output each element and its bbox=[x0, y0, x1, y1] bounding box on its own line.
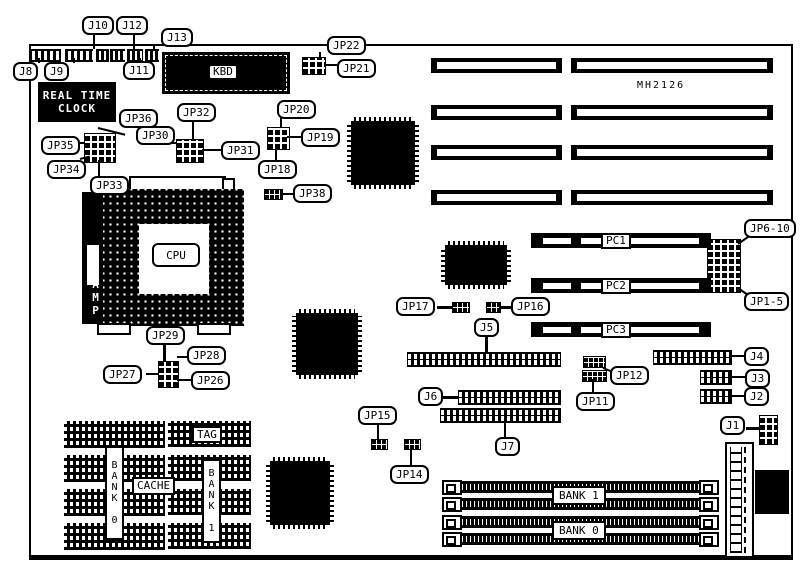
jumper-block-jp26-29 bbox=[158, 361, 179, 388]
simm-clip bbox=[442, 515, 462, 530]
jumper-block-jp18-20 bbox=[267, 127, 290, 150]
isa-slot-1-short bbox=[431, 58, 562, 73]
connector-j10 bbox=[96, 49, 109, 62]
callout-jp22: JP22 bbox=[327, 36, 366, 55]
memory-bank0-label: BANK 0 bbox=[552, 521, 606, 540]
pc3-label: PC3 bbox=[601, 322, 631, 338]
callout-jp30: JP30 bbox=[136, 126, 175, 145]
kbd-label: KBD bbox=[208, 64, 238, 80]
connector-j1-block bbox=[759, 415, 778, 445]
jumper-jp17 bbox=[452, 302, 470, 313]
pc2-label: PC2 bbox=[601, 278, 631, 294]
simm-clip bbox=[699, 532, 719, 547]
jumper-block-jp33-36 bbox=[84, 133, 116, 163]
callout-jp33: JP33 bbox=[90, 176, 129, 195]
cache-bank0-label: BANK 0 bbox=[105, 446, 124, 540]
header-j5 bbox=[407, 352, 561, 367]
leader-line bbox=[133, 33, 135, 49]
jumper-jp15 bbox=[371, 439, 388, 450]
callout-jp18: JP18 bbox=[258, 160, 297, 179]
leader-line bbox=[38, 58, 40, 63]
leader-line bbox=[485, 336, 488, 353]
real-time-clock-chip: REAL TIME CLOCK bbox=[38, 82, 116, 122]
jumper-jp14 bbox=[404, 439, 421, 450]
callout-j13: J13 bbox=[161, 28, 193, 47]
callout-jp28: JP28 bbox=[187, 346, 226, 365]
callout-jp20: JP20 bbox=[277, 100, 316, 119]
cache-label: CACHE bbox=[132, 477, 175, 495]
jumper-block-jp21-22 bbox=[302, 57, 326, 75]
isa-slot-4-short bbox=[431, 190, 562, 205]
simm-clip bbox=[442, 497, 462, 512]
callout-j8: J8 bbox=[13, 62, 38, 81]
qfp-chip-2 bbox=[292, 309, 362, 379]
callout-jp15: JP15 bbox=[358, 406, 397, 425]
callout-jp38: JP38 bbox=[293, 184, 332, 203]
simm-clip bbox=[699, 497, 719, 512]
leader-line bbox=[441, 396, 459, 399]
callout-j7: J7 bbox=[495, 437, 520, 456]
socket-brand-label: AMP bbox=[85, 278, 105, 317]
power-connector bbox=[725, 442, 754, 558]
callout-j6: J6 bbox=[418, 387, 443, 406]
callout-jp21: JP21 bbox=[337, 59, 376, 78]
jumper-jp11 bbox=[582, 370, 607, 382]
header-j4 bbox=[653, 350, 732, 365]
callout-jp27: JP27 bbox=[103, 365, 142, 384]
leader-line bbox=[73, 58, 75, 63]
jumper-block-jp30-32 bbox=[176, 139, 204, 163]
callout-jp1-5: JP1-5 bbox=[744, 292, 789, 311]
callout-jp6-10: JP6-10 bbox=[744, 219, 796, 238]
leader-line bbox=[177, 379, 192, 381]
leader-line bbox=[729, 395, 745, 397]
callout-jp14: JP14 bbox=[390, 465, 429, 484]
simm-clip bbox=[699, 480, 719, 495]
rtc-label-line2: CLOCK bbox=[58, 102, 96, 115]
callout-j3: J3 bbox=[745, 369, 770, 388]
socket-foot-left bbox=[97, 323, 131, 335]
simm-clip bbox=[442, 532, 462, 547]
leader-line bbox=[98, 160, 100, 177]
leader-line bbox=[146, 373, 159, 375]
isa-slot-3-short bbox=[431, 145, 562, 160]
header-j3 bbox=[700, 370, 732, 385]
leader-line bbox=[746, 427, 760, 430]
header-j7 bbox=[440, 408, 561, 423]
leader-line bbox=[153, 44, 155, 50]
callout-jp26: JP26 bbox=[191, 371, 230, 390]
leader-line bbox=[410, 447, 412, 466]
callout-j9: J9 bbox=[44, 62, 69, 81]
leader-line bbox=[287, 136, 302, 138]
pc1-label: PC1 bbox=[601, 233, 631, 249]
callout-jp16: JP16 bbox=[511, 297, 550, 316]
connector-j9 bbox=[65, 49, 93, 62]
cpu-label: CPU bbox=[152, 243, 200, 267]
callout-j10: J10 bbox=[82, 16, 114, 35]
qfp-chip-3 bbox=[266, 457, 334, 529]
motherboard-diagram: KBD REAL TIME CLOCK AMP CPU M bbox=[0, 0, 810, 567]
leader-line bbox=[280, 193, 294, 195]
connector-j8 bbox=[29, 49, 61, 62]
edge-connector-tab bbox=[755, 470, 789, 514]
isa-slot-4-long bbox=[571, 190, 773, 205]
cache-bank1-label: BANK 1 bbox=[202, 459, 221, 543]
callout-jp29: JP29 bbox=[146, 326, 185, 345]
leader-line bbox=[319, 52, 321, 58]
callout-jp19: JP19 bbox=[301, 128, 340, 147]
simm-clip bbox=[442, 480, 462, 495]
callout-j4: J4 bbox=[744, 347, 769, 366]
isa-slot-3-long bbox=[571, 145, 773, 160]
isa-slot-2-short bbox=[431, 105, 562, 120]
rtc-label-line1: REAL TIME bbox=[43, 89, 112, 102]
callout-j12: J12 bbox=[116, 16, 148, 35]
callout-jp31: JP31 bbox=[221, 141, 260, 160]
isa-slot-2-long bbox=[571, 105, 773, 120]
cache-chip-bank0-1 bbox=[64, 421, 165, 448]
callout-j1: J1 bbox=[720, 416, 745, 435]
connector-j11 bbox=[110, 49, 125, 62]
callout-jp17: JP17 bbox=[396, 297, 435, 316]
callout-jp34: JP34 bbox=[47, 160, 86, 179]
callout-jp32: JP32 bbox=[177, 103, 216, 122]
leader-line bbox=[93, 33, 95, 49]
simm-clip bbox=[699, 515, 719, 530]
leader-line bbox=[592, 379, 594, 393]
leader-line bbox=[192, 119, 194, 140]
callout-j5: J5 bbox=[474, 318, 499, 337]
isa-slot-1-long bbox=[571, 58, 773, 73]
leader-line bbox=[324, 64, 338, 66]
callout-jp35: JP35 bbox=[41, 136, 80, 155]
header-j6 bbox=[458, 390, 561, 405]
jumper-block-jp1-10 bbox=[707, 239, 741, 293]
memory-bank1-label: BANK 1 bbox=[552, 486, 606, 505]
leader-line bbox=[729, 376, 746, 378]
leader-line bbox=[504, 421, 506, 438]
callout-j2: J2 bbox=[744, 387, 769, 406]
tag-label: TAG bbox=[192, 426, 222, 443]
callout-j11: J11 bbox=[123, 61, 155, 80]
socket-foot-right bbox=[197, 323, 231, 335]
callout-jp11: JP11 bbox=[576, 392, 615, 411]
leader-line bbox=[729, 355, 745, 357]
leader-line bbox=[202, 149, 222, 151]
leader-line bbox=[437, 306, 453, 309]
header-j2 bbox=[700, 389, 732, 404]
callout-jp12: JP12 bbox=[610, 366, 649, 385]
board-model-text: MH2126 bbox=[637, 80, 685, 91]
qfp-chip-1 bbox=[347, 117, 419, 189]
qfp-chip-4 bbox=[441, 241, 511, 289]
